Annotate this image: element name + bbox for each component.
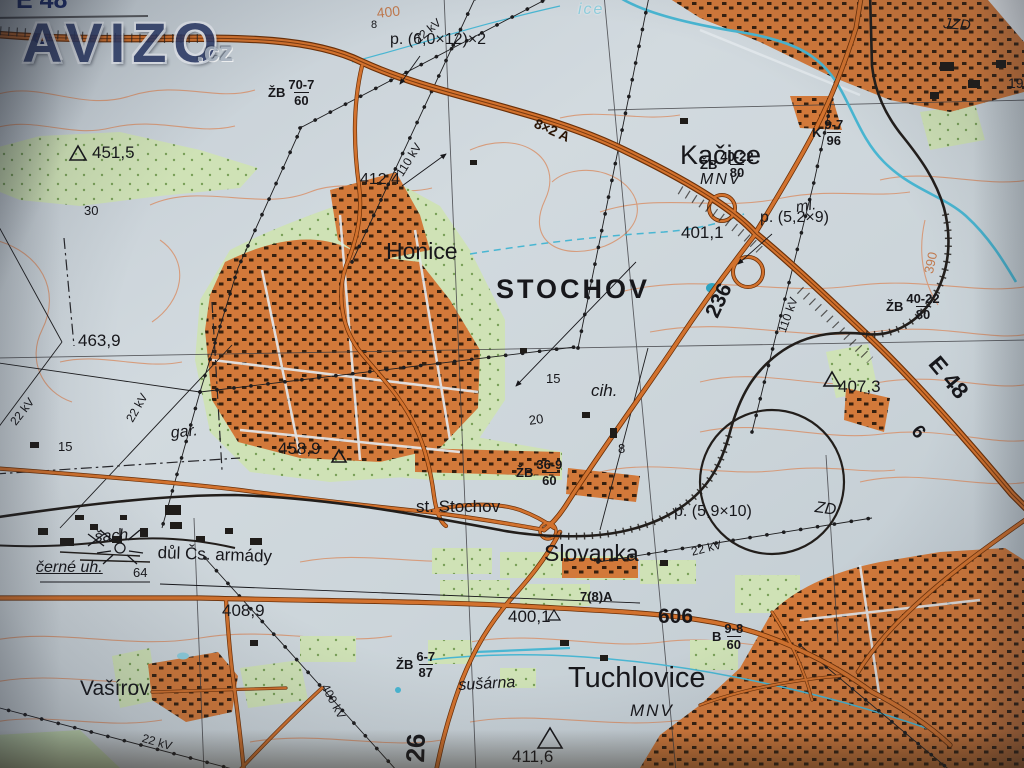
spot-height-458-9: 458,9: [278, 440, 321, 457]
topographic-map-photo: E 48 6 AVIZO .cz 400 p. (6,0×12)×2 8 22 …: [0, 0, 1024, 768]
urban-areas: [148, 0, 1024, 768]
bridge-label-36-9-60: ŽB 36-960: [516, 458, 562, 487]
number-label-8-top: 8: [371, 20, 377, 31]
bridge-label-6-7-87: ŽB 6-787: [396, 650, 435, 679]
route-label-26: 26: [402, 733, 429, 763]
station-label-st-stochov: st. Stochov: [416, 498, 500, 515]
watermark-avizo: AVIZO: [22, 10, 224, 75]
spot-height-408-9: 408,9: [222, 602, 265, 619]
bridge-label-k-9-7-96: K 9-796: [812, 118, 843, 147]
feature-label-mine-name: důl Čs. armády: [157, 544, 272, 565]
spot-height-411-6: 411,6: [512, 748, 553, 765]
feature-label-brickworks: cih.: [591, 382, 617, 399]
number-label-30: 30: [84, 204, 98, 217]
route-label-606: 606: [658, 606, 693, 627]
spot-height-412-4: 412,4: [360, 172, 400, 188]
spot-height-401-1: 401,1: [681, 224, 724, 241]
place-label-tuchlovice: Tuchlovice: [568, 664, 706, 693]
place-label-vasirov: Vašírov: [80, 678, 150, 699]
spot-height-451-5: 451,5: [92, 144, 135, 161]
underpass-label-2: p. (5,2×9): [760, 210, 829, 226]
feature-label-zd: ZD: [814, 500, 837, 519]
number-label-64: 64: [133, 566, 147, 579]
feature-label-black-coal: černé uh.: [36, 560, 103, 576]
bridge-label-40-22-80-b: ŽB 40-2280: [886, 292, 940, 321]
place-label-kacice: Kačice: [680, 142, 761, 169]
number-label-15-left: 15: [58, 440, 72, 453]
place-sublabel-tuchlovice-mnv: MNV: [630, 702, 674, 719]
place-label-stochov: STOCHOV: [496, 276, 650, 303]
place-label-honice: Honice: [386, 240, 458, 263]
number-label-19: 19: [1008, 76, 1024, 90]
bridge-label-9-8-60: B 9-860: [712, 622, 743, 651]
watermark-cz: .cz: [196, 36, 233, 68]
bridge-label-70-7-60: ŽB 70-760: [268, 78, 314, 107]
spot-height-400-1: 400,1: [508, 608, 551, 625]
number-label-15-center: 15: [546, 372, 560, 385]
spot-height-463-9: 463,9: [78, 332, 121, 349]
underpass-label-1: p. (6,0×12)×2: [390, 32, 486, 48]
route-label-78a: 7(8)A: [580, 590, 613, 603]
number-label-8-center: 8: [618, 442, 625, 455]
feature-label-garage: gar.: [170, 423, 199, 442]
feature-label-drying-house: sušárna: [458, 675, 516, 694]
feature-label-jzd: JZD: [943, 16, 972, 33]
spot-height-407-3: 407,3: [838, 378, 881, 395]
underpass-label-3: p. (5,9×10): [674, 504, 752, 520]
feature-label-shaft: šach.: [94, 527, 133, 546]
place-label-slovanka: Slovanka: [544, 542, 639, 565]
contour-label-400: 400: [376, 4, 401, 20]
place-sublabel-kacice-mnv: MNV: [700, 172, 742, 188]
stream-name-label: ice: [578, 2, 604, 18]
number-label-20: 20: [528, 412, 544, 427]
